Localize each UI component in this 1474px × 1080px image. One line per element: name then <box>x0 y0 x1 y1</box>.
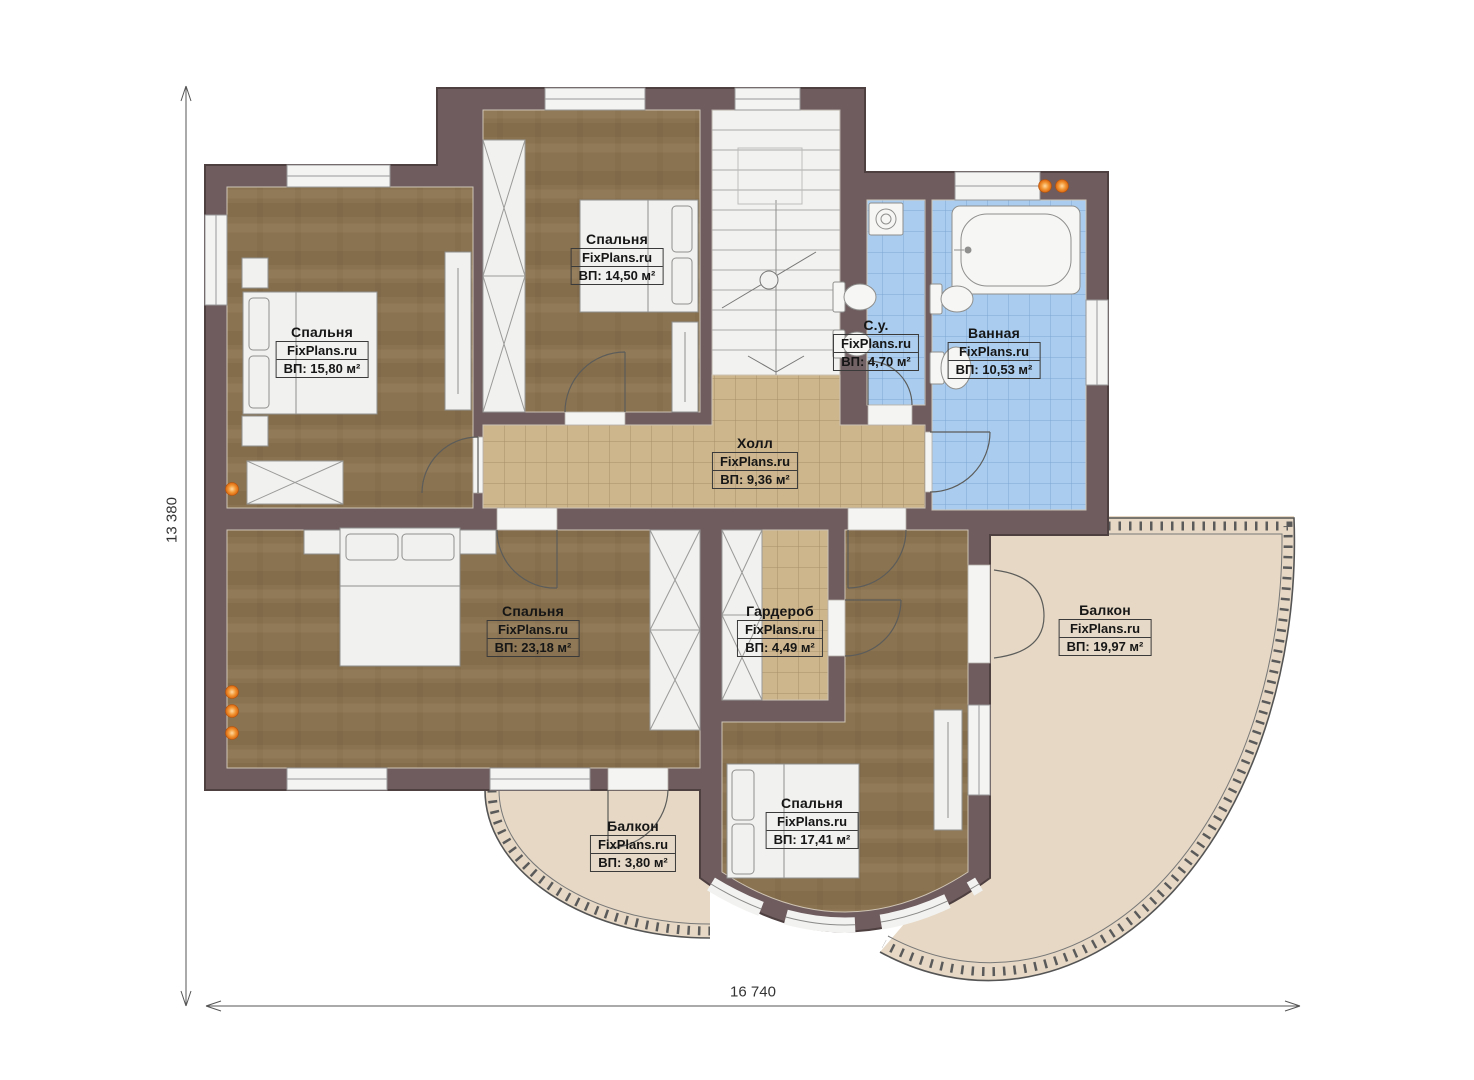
window <box>205 215 227 305</box>
room-name: Спальня <box>571 231 664 247</box>
room-name: Спальня <box>766 795 859 811</box>
window <box>287 165 390 187</box>
room-label-box: FixPlans.ru ВП: 4,70 м² <box>833 334 919 371</box>
closet <box>483 276 525 412</box>
brand-label: FixPlans.ru <box>488 621 579 638</box>
room-area: ВП: 19,97 м² <box>1060 637 1151 655</box>
brand-label: FixPlans.ru <box>713 453 797 470</box>
closet <box>650 630 700 730</box>
room-area: ВП: 10,53 м² <box>949 360 1040 378</box>
dimension-width-label: 16 740 <box>730 984 776 1001</box>
room-label-bedroom-top-left: Спальня FixPlans.ru ВП: 15,80 м² <box>276 324 369 378</box>
room-label-wardrobe: Гардероб FixPlans.ru ВП: 4,49 м² <box>737 603 823 657</box>
room-label-box: FixPlans.ru ВП: 17,41 м² <box>766 812 859 849</box>
room-name: Гардероб <box>737 603 823 619</box>
window <box>968 705 990 795</box>
dresser <box>445 252 471 410</box>
toilet <box>833 282 876 312</box>
window <box>287 768 387 790</box>
room-label-bedroom-bottom: Спальня FixPlans.ru ВП: 17,41 м² <box>766 795 859 849</box>
closet <box>247 461 343 504</box>
room-label-balcony-large: Балкон FixPlans.ru ВП: 19,97 м² <box>1059 602 1152 656</box>
room-label-box: FixPlans.ru ВП: 23,18 м² <box>487 620 580 657</box>
room-area: ВП: 4,49 м² <box>738 638 822 656</box>
room-label-box: FixPlans.ru ВП: 9,36 м² <box>712 452 798 489</box>
room-label-box: FixPlans.ru ВП: 10,53 м² <box>948 342 1041 379</box>
room-name: Ванная <box>948 325 1041 341</box>
brand-label: FixPlans.ru <box>834 335 918 352</box>
room-label-box: FixPlans.ru ВП: 3,80 м² <box>590 835 676 872</box>
floor-master-bedroom <box>227 530 700 768</box>
room-name: С.у. <box>833 317 919 333</box>
brand-label: FixPlans.ru <box>277 342 368 359</box>
room-name: Спальня <box>487 603 580 619</box>
washing-machine <box>869 203 903 235</box>
room-label-box: FixPlans.ru ВП: 14,50 м² <box>571 248 664 285</box>
brand-label: FixPlans.ru <box>1060 620 1151 637</box>
room-label-box: FixPlans.ru ВП: 4,49 м² <box>737 620 823 657</box>
room-area: ВП: 9,36 м² <box>713 470 797 488</box>
brand-label: FixPlans.ru <box>738 621 822 638</box>
room-label-box: FixPlans.ru ВП: 19,97 м² <box>1059 619 1152 656</box>
room-label-bedroom-top-mid: Спальня FixPlans.ru ВП: 14,50 м² <box>571 231 664 285</box>
marker-dot <box>226 483 239 496</box>
marker-dot <box>226 686 239 699</box>
room-label-bedroom-master: Спальня FixPlans.ru ВП: 23,18 м² <box>487 603 580 657</box>
room-name: Балкон <box>590 818 676 834</box>
room-area: ВП: 23,18 м² <box>488 638 579 656</box>
brand-label: FixPlans.ru <box>949 343 1040 360</box>
window <box>1086 300 1108 385</box>
closet <box>650 530 700 630</box>
window <box>955 172 1040 200</box>
dimension-height-label: 13 380 <box>164 497 181 543</box>
dresser <box>672 322 698 412</box>
floor-plan-page: Спальня FixPlans.ru ВП: 15,80 м² Спальня… <box>0 0 1474 1080</box>
room-label-balcony-small: Балкон FixPlans.ru ВП: 3,80 м² <box>590 818 676 872</box>
room-name: Балкон <box>1059 602 1152 618</box>
toilet <box>930 284 973 314</box>
window <box>545 88 645 110</box>
closet <box>483 140 525 276</box>
room-label-bathroom: Ванная FixPlans.ru ВП: 10,53 м² <box>948 325 1041 379</box>
brand-label: FixPlans.ru <box>591 836 675 853</box>
room-label-hall: Холл FixPlans.ru ВП: 9,36 м² <box>712 435 798 489</box>
window <box>490 768 590 790</box>
brand-label: FixPlans.ru <box>767 813 858 830</box>
window <box>735 88 800 110</box>
room-label-box: FixPlans.ru ВП: 15,80 м² <box>276 341 369 378</box>
room-label-wc: С.у. FixPlans.ru ВП: 4,70 м² <box>833 317 919 371</box>
dresser <box>934 710 962 830</box>
room-area: ВП: 3,80 м² <box>591 853 675 871</box>
bathtub <box>952 206 1080 294</box>
room-area: ВП: 14,50 м² <box>572 266 663 284</box>
floor-plan-drawing <box>0 0 1474 1080</box>
room-area: ВП: 15,80 м² <box>277 359 368 377</box>
marker-dot <box>226 705 239 718</box>
room-area: ВП: 4,70 м² <box>834 352 918 370</box>
marker-dot <box>1056 180 1069 193</box>
room-name: Спальня <box>276 324 369 340</box>
marker-dot <box>1039 180 1052 193</box>
room-name: Холл <box>712 435 798 451</box>
brand-label: FixPlans.ru <box>572 249 663 266</box>
marker-dot <box>226 727 239 740</box>
room-area: ВП: 17,41 м² <box>767 830 858 848</box>
